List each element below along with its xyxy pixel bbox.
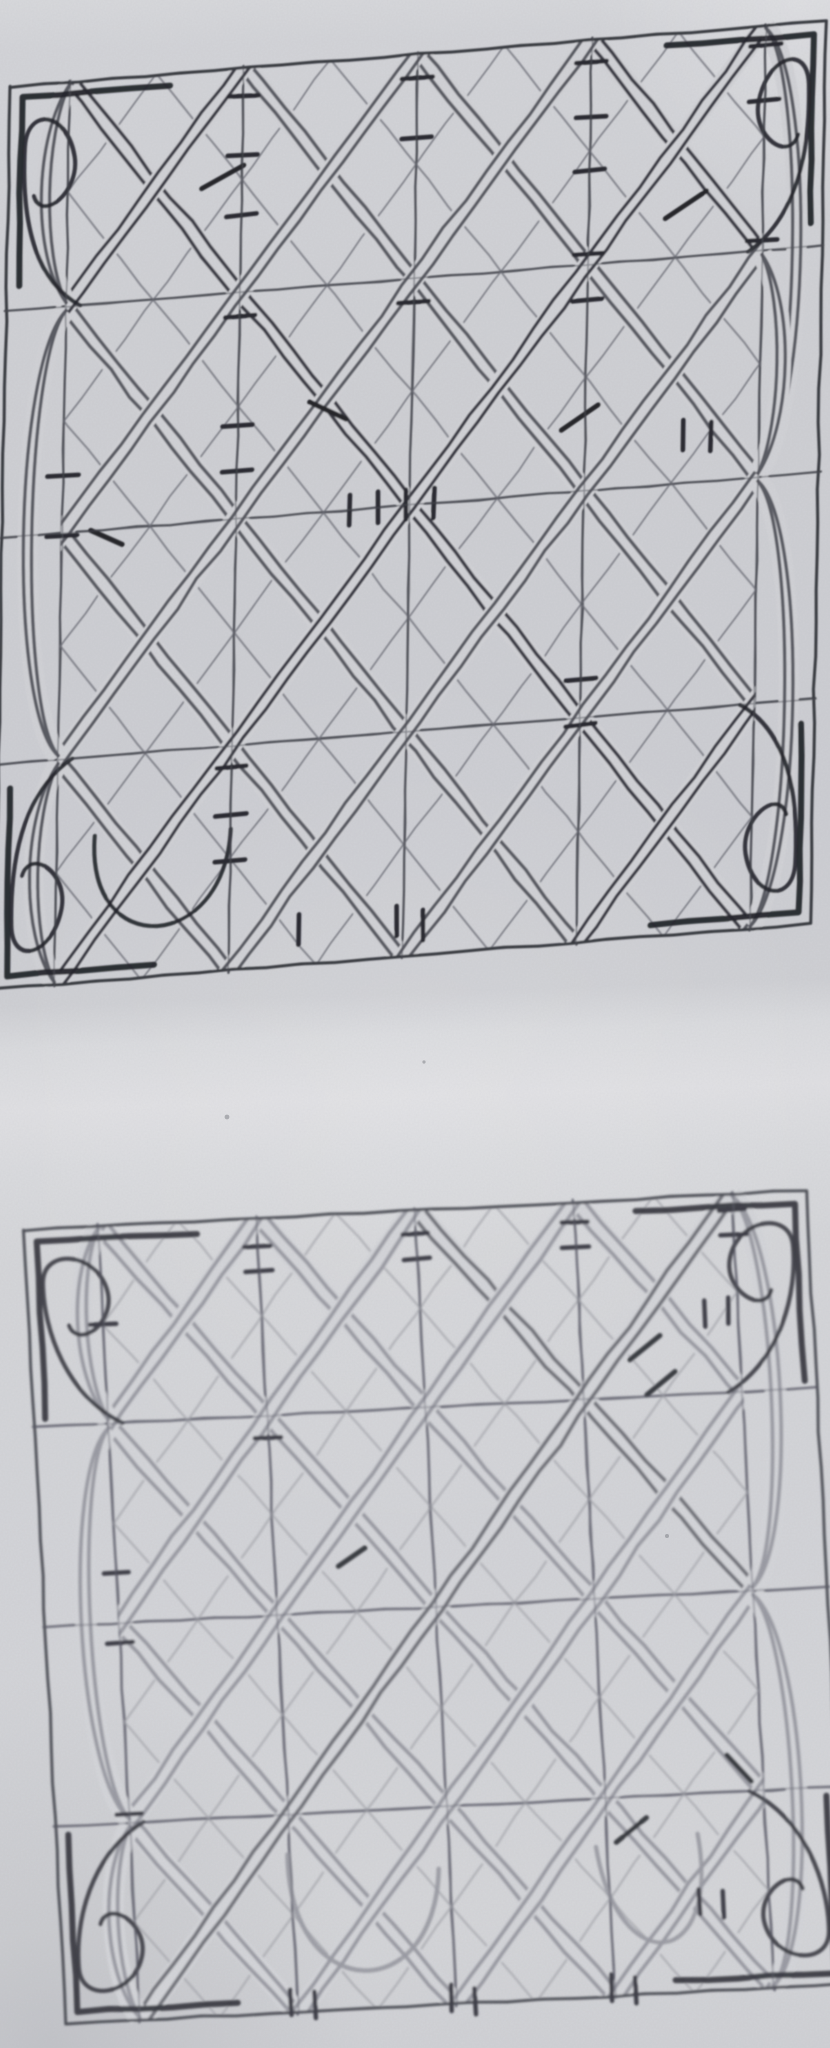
photo-of-knotwork-sketch xyxy=(0,0,830,2048)
knotwork-scene xyxy=(0,0,830,2048)
paper-grain-overlay xyxy=(0,0,830,2048)
